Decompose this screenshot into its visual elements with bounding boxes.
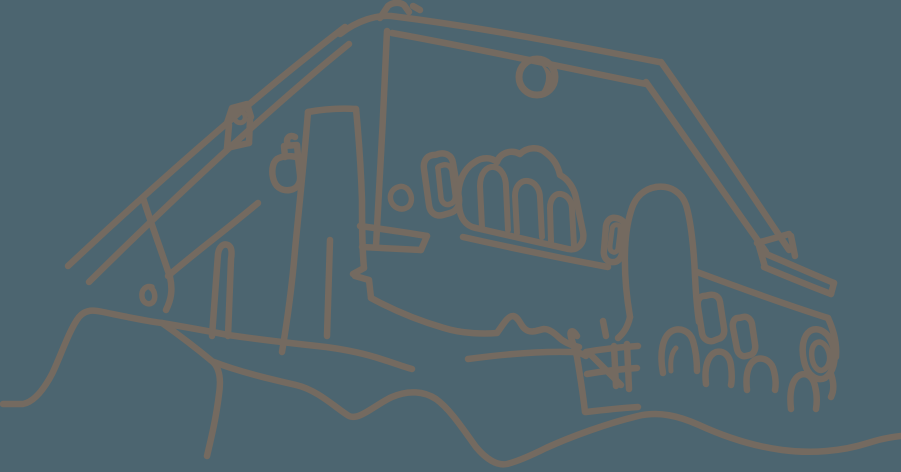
apex-tick — [413, 6, 420, 10]
chimney-inner — [327, 240, 330, 336]
ring-window-tail — [831, 374, 833, 397]
house-sketch-illustration — [0, 0, 901, 472]
sketch-canvas — [0, 0, 901, 472]
gutter-end — [831, 283, 834, 294]
fence-picket-2 — [627, 344, 629, 389]
chimney-top — [308, 109, 356, 112]
dormer-body-right — [249, 120, 250, 143]
eave-box-b — [791, 236, 795, 256]
beam-bottom — [362, 247, 421, 250]
tower-foot — [603, 321, 606, 336]
